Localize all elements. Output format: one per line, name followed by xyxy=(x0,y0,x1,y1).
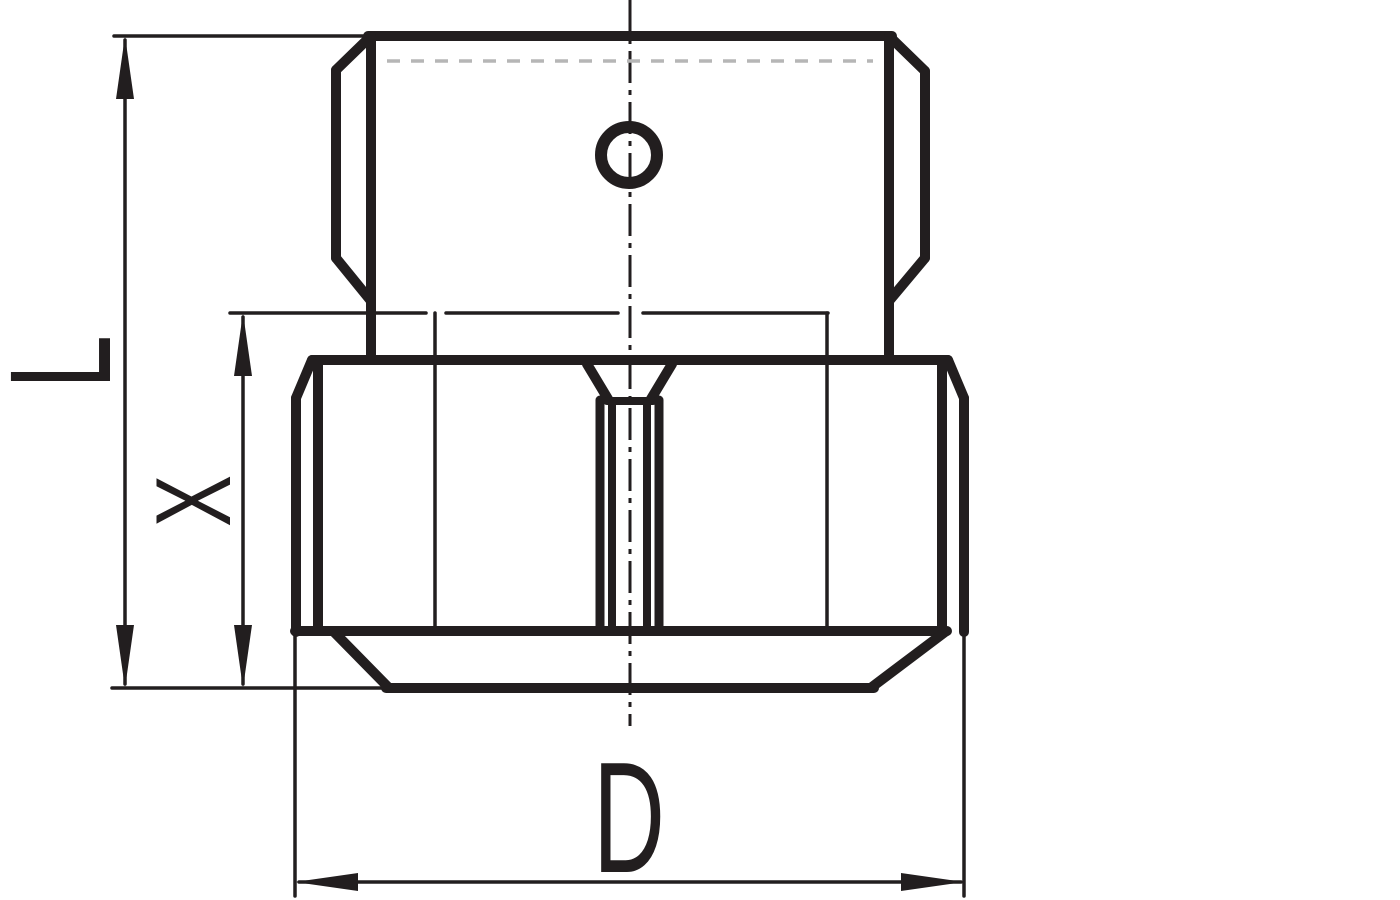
hex-plug-fitting-drawing: L X D xyxy=(0,0,1400,900)
dimension-X: X xyxy=(133,313,253,688)
dimension-label-overall-width: D xyxy=(593,730,665,900)
technical-drawing-page: L X D xyxy=(0,0,1400,900)
arrowhead-down-icon xyxy=(234,625,252,688)
arrowhead-down-icon xyxy=(116,625,134,688)
arrowhead-up-icon xyxy=(234,313,252,376)
dimension-label-lower-height: X xyxy=(133,475,253,527)
arrowhead-up-icon xyxy=(116,36,134,99)
dimension-label-overall-height: L xyxy=(0,335,141,389)
arrowhead-left-icon xyxy=(295,873,358,891)
arrowhead-right-icon xyxy=(901,873,964,891)
